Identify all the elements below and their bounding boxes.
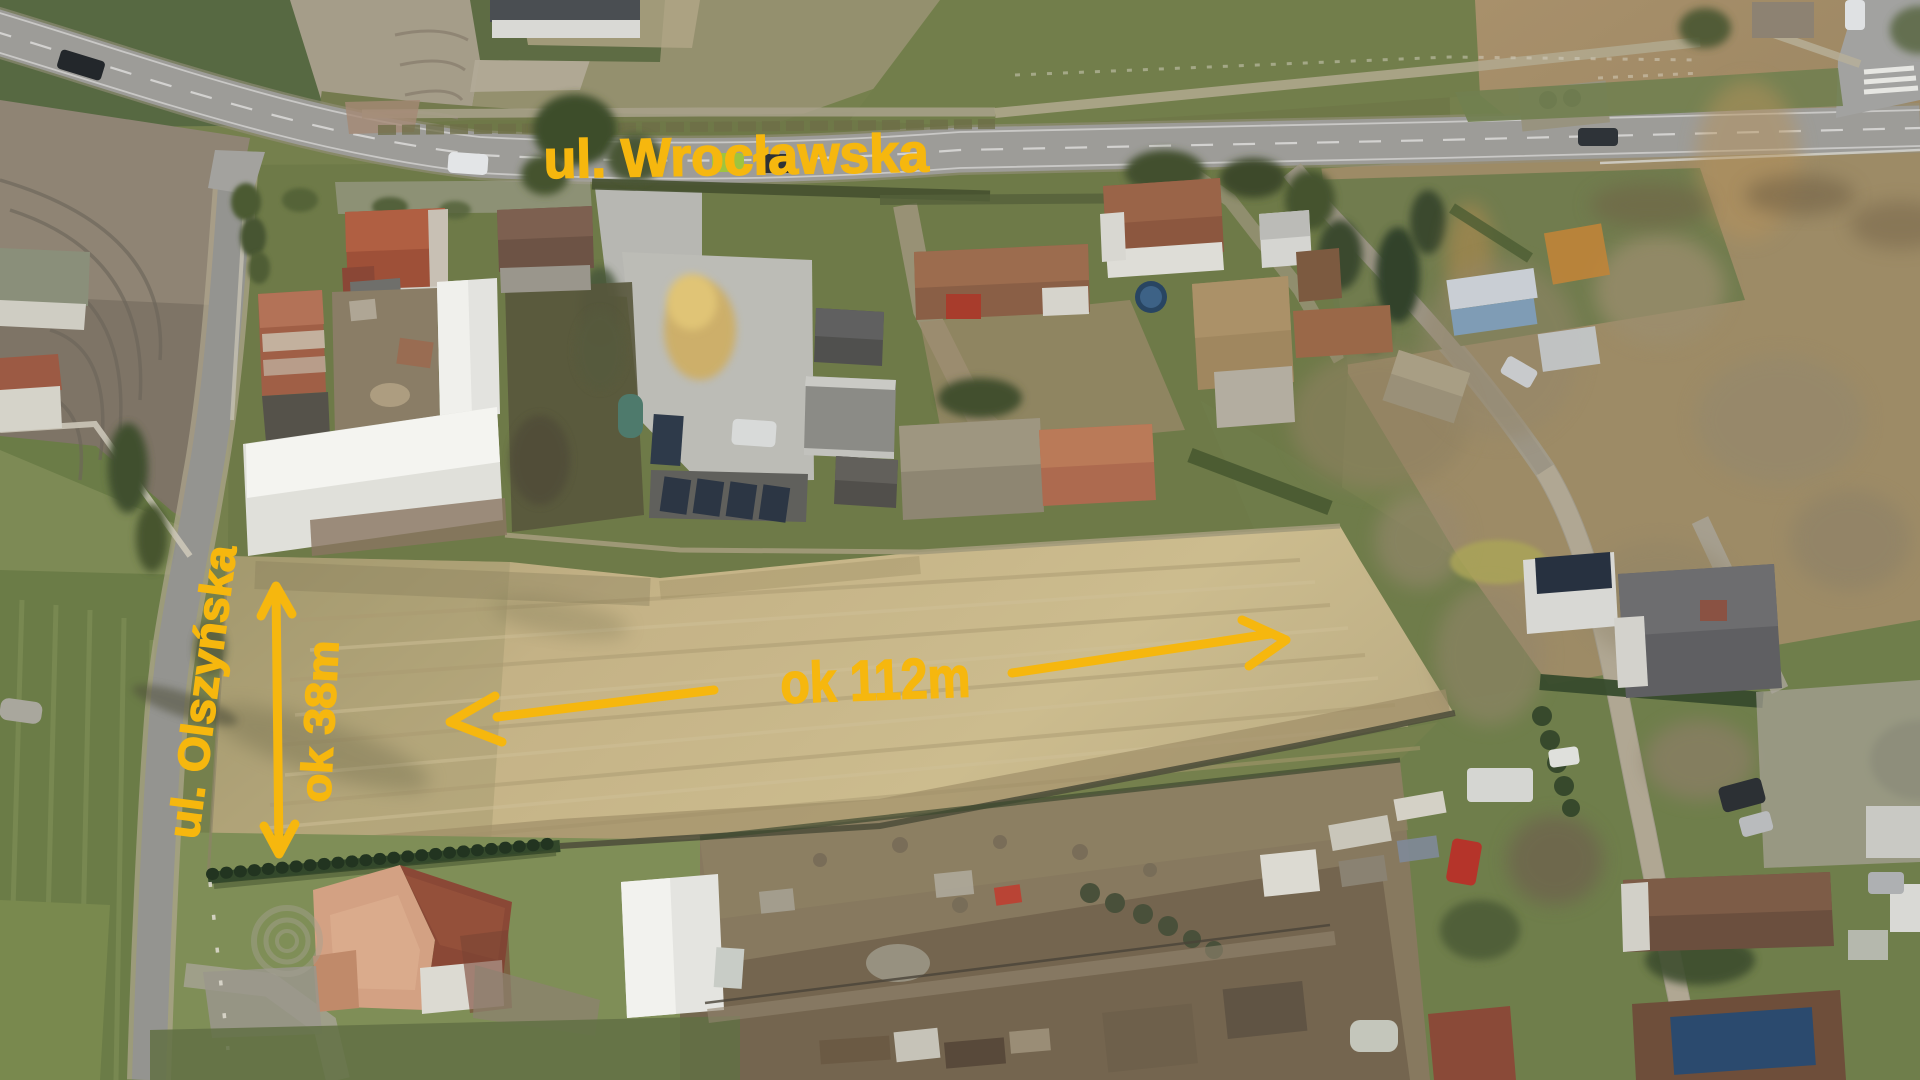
svg-text:ul. Wrocławska: ul. Wrocławska <box>543 123 930 190</box>
svg-text:ok 38m: ok 38m <box>292 639 348 803</box>
svg-text:ok 112m: ok 112m <box>779 645 971 716</box>
